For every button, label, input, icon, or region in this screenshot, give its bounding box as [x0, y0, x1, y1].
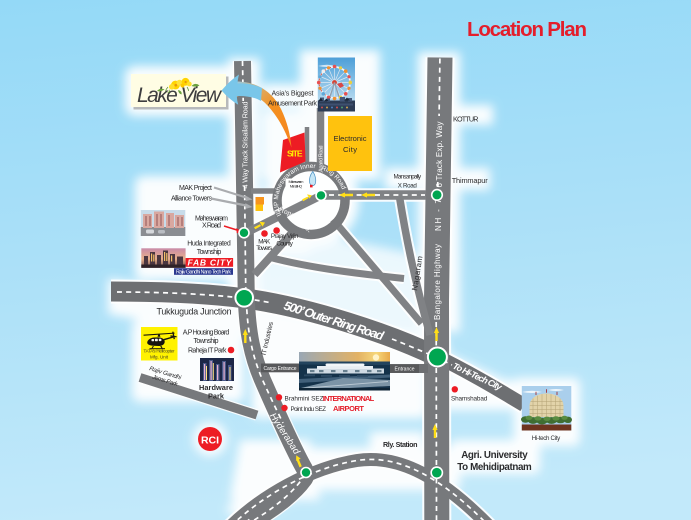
svg-text:Entrance: Entrance: [395, 367, 415, 373]
svg-text:Amusement Park: Amusement Park: [268, 99, 317, 108]
svg-text:County: County: [276, 240, 293, 247]
svg-text:Rajiv Gandhi Nano Tech Park: Rajiv Gandhi Nano Tech Park: [176, 270, 231, 276]
svg-text:Mandal HQ: Mandal HQ: [290, 183, 303, 188]
svg-text:To Mehidipatnam: To Mehidipatnam: [457, 462, 532, 473]
svg-text:Prajay Virjin: Prajay Virjin: [271, 233, 299, 240]
svg-text:Agri. University: Agri. University: [461, 450, 528, 461]
svg-text:Location Plan: Location Plan: [467, 18, 587, 41]
svg-text:Asia’s Biggest: Asia’s Biggest: [272, 89, 314, 98]
svg-text:X Road: X Road: [398, 183, 418, 190]
svg-text:Hi-tech City: Hi-tech City: [532, 435, 561, 442]
svg-text:Rly. Station: Rly. Station: [383, 440, 418, 449]
svg-text:Mansanpally: Mansanpally: [394, 174, 422, 181]
svg-text:Raheja IT Park: Raheja IT Park: [188, 347, 227, 354]
svg-text:RCI: RCI: [201, 435, 219, 447]
svg-text:4 Way Track Srisailam Road: 4 Way Track Srisailam Road: [241, 102, 250, 189]
svg-text:FAB CITY: FAB CITY: [188, 257, 233, 267]
svg-text:Lake View: Lake View: [137, 84, 223, 107]
svg-text:INTERNATIONAL: INTERNATIONAL: [323, 394, 375, 403]
svg-text:NH - 7: NH - 7: [434, 198, 443, 231]
svg-text:Township: Township: [194, 338, 219, 345]
svg-text:TATA’s Helicopter: TATA’s Helicopter: [144, 349, 176, 354]
svg-text:Shamshabad: Shamshabad: [451, 396, 488, 403]
svg-text:Point Indu SEZ: Point Indu SEZ: [291, 406, 327, 413]
svg-text:Township: Township: [197, 249, 222, 256]
svg-text:City: City: [343, 145, 357, 154]
svg-text:MAK Project: MAK Project: [179, 185, 212, 192]
svg-text:6 Track Exp. Way: 6 Track Exp. Way: [435, 122, 444, 188]
svg-text:Thimmapur: Thimmapur: [452, 176, 489, 185]
svg-text:Alliance Towers: Alliance Towers: [171, 196, 213, 203]
svg-text:KOTTUR: KOTTUR: [453, 115, 479, 124]
svg-text:Mfg. Unit: Mfg. Unit: [150, 355, 169, 360]
svg-text:AIRPORT: AIRPORT: [333, 404, 364, 413]
svg-text:Brahmini SEZ: Brahmini SEZ: [285, 395, 324, 402]
svg-text:Towers: Towers: [256, 245, 272, 252]
svg-text:Cargo Entrance: Cargo Entrance: [264, 366, 297, 372]
svg-text:SITE: SITE: [287, 149, 303, 159]
svg-text:Bangalore Highway: Bangalore Highway: [433, 244, 442, 320]
svg-text:Park: Park: [208, 392, 225, 401]
svg-text:Electronic: Electronic: [334, 134, 367, 143]
svg-text:Huda Integrated: Huda Integrated: [187, 241, 231, 248]
svg-text:X Road: X Road: [202, 222, 221, 229]
svg-text:A.P Housing Board: A.P Housing Board: [183, 330, 230, 337]
svg-text:Tukkuguda Junction: Tukkuguda Junction: [157, 307, 232, 317]
